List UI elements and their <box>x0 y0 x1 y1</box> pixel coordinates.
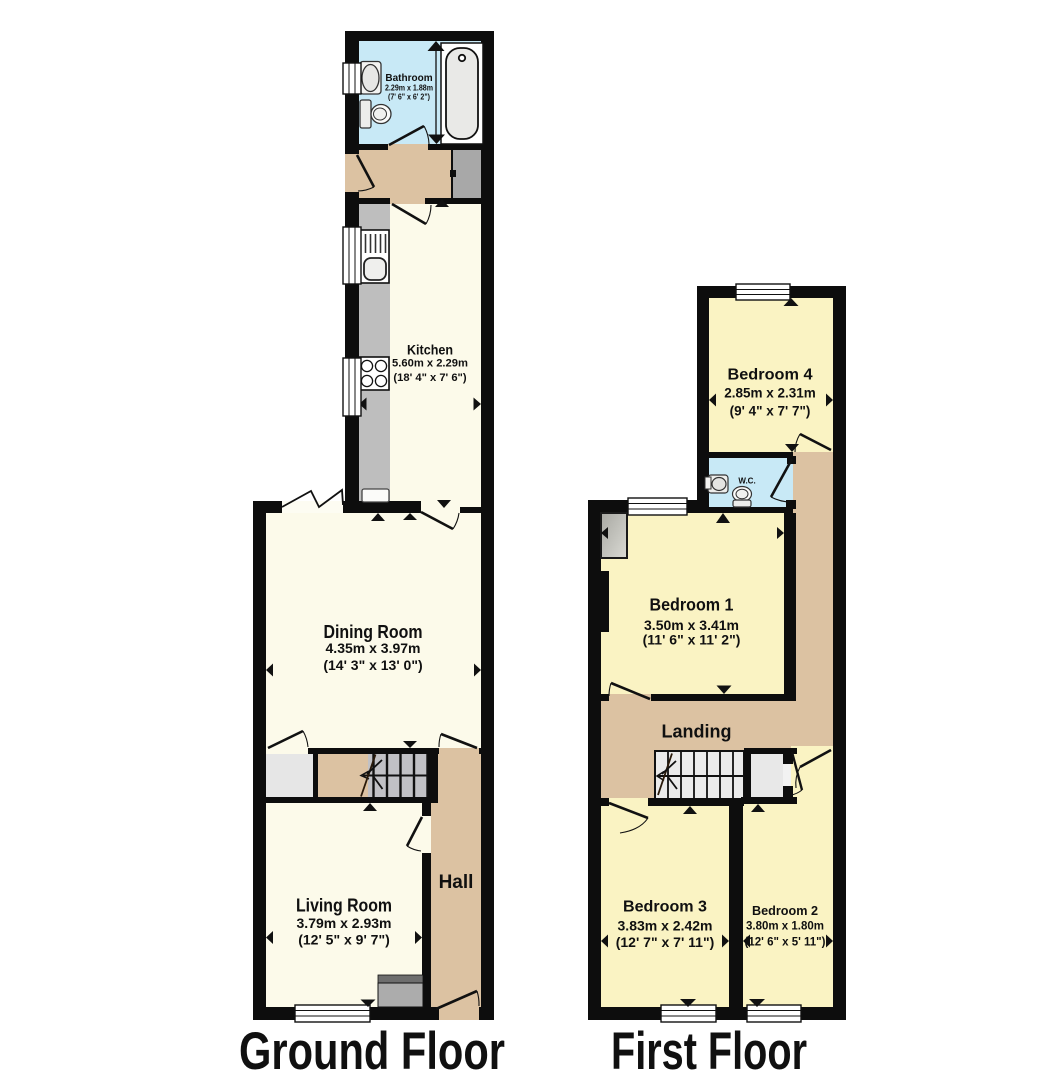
svg-text:2.85m x 2.31m: 2.85m x 2.31m <box>724 386 816 401</box>
svg-text:(12' 6" x 5' 11"): (12' 6" x 5' 11") <box>745 937 826 949</box>
svg-text:Living Room: Living Room <box>296 896 392 916</box>
svg-text:(14' 3" x 13' 0"): (14' 3" x 13' 0") <box>323 657 422 673</box>
svg-text:(18' 4" x 7' 6"): (18' 4" x 7' 6") <box>393 372 466 384</box>
svg-text:Bedroom 2: Bedroom 2 <box>752 903 818 918</box>
svg-text:(11' 6" x 11' 2"): (11' 6" x 11' 2") <box>643 632 741 648</box>
svg-text:Bedroom 4: Bedroom 4 <box>728 367 813 384</box>
svg-text:(12' 5" x 9' 7"): (12' 5" x 9' 7") <box>298 932 390 948</box>
svg-text:Hall: Hall <box>439 872 474 893</box>
svg-text:5.60m x 2.29m: 5.60m x 2.29m <box>392 358 468 370</box>
svg-text:First Floor: First Floor <box>611 1022 807 1080</box>
svg-text:Landing: Landing <box>662 722 732 742</box>
svg-text:(12' 7" x 7' 11"): (12' 7" x 7' 11") <box>616 934 715 950</box>
svg-text:4.35m x 3.97m: 4.35m x 3.97m <box>326 640 421 656</box>
svg-text:Ground Floor: Ground Floor <box>239 1022 505 1080</box>
svg-text:3.83m x 2.42m: 3.83m x 2.42m <box>618 918 713 934</box>
svg-text:3.80m x 1.80m: 3.80m x 1.80m <box>746 921 824 933</box>
svg-text:Bedroom 1: Bedroom 1 <box>650 595 734 615</box>
svg-text:(7' 6" x 6' 2"): (7' 6" x 6' 2") <box>388 92 430 102</box>
svg-text:Bedroom 3: Bedroom 3 <box>623 899 707 916</box>
svg-text:3.79m x 2.93m: 3.79m x 2.93m <box>297 915 392 931</box>
svg-text:Dining Room: Dining Room <box>324 622 423 642</box>
svg-text:W.C.: W.C. <box>738 477 755 486</box>
svg-text:(9' 4" x 7' 7"): (9' 4" x 7' 7") <box>730 404 811 419</box>
svg-text:Kitchen: Kitchen <box>407 343 453 358</box>
